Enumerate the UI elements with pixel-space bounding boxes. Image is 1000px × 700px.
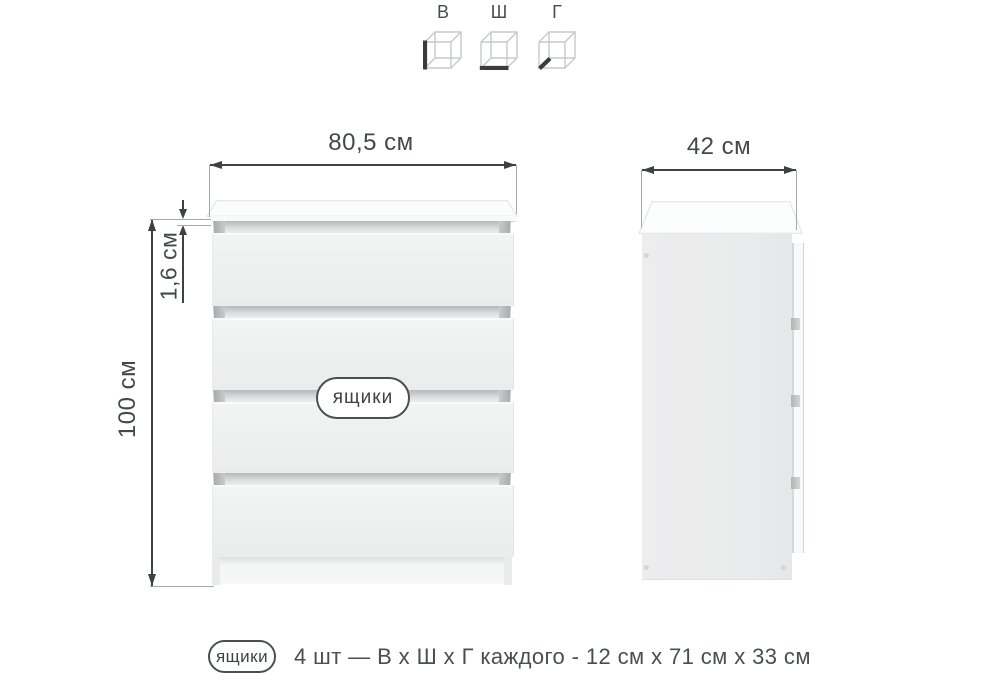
thickness-arrow-down [182, 200, 184, 209]
legend-width: Ш [477, 2, 521, 75]
width-extension-left [209, 165, 210, 217]
height-dimension-line [151, 219, 153, 586]
drawer-gap-2 [213, 306, 511, 318]
width-dimension-label: 80,5 см [328, 129, 413, 157]
side-panel [642, 234, 792, 580]
depth-extension-left [641, 170, 642, 228]
dowel-dot-bottom-right [781, 565, 786, 570]
depth-dimension-line [642, 169, 796, 171]
thickness-arrow-up [182, 235, 184, 303]
caption-text: 4 шт — В х Ш х Г каждого - 12 см х 71 см… [294, 641, 811, 673]
drawer-front-1 [212, 233, 514, 306]
height-extension-bottom [150, 586, 214, 587]
drawer-front-4 [212, 485, 514, 557]
cube-width-icon [479, 28, 519, 70]
legend-depth: Г [535, 2, 579, 75]
side-gap-notch-3 [791, 477, 800, 489]
height-extension-top [150, 219, 211, 220]
drawer-gap-4 [213, 473, 511, 485]
dowel-dot-top [644, 253, 649, 258]
width-dimension-line [210, 164, 516, 166]
cube-height-icon [423, 28, 463, 70]
depth-extension-right [796, 170, 797, 230]
thickness-extension-line [177, 225, 211, 226]
caption-badge: ящики [208, 640, 276, 673]
width-extension-right [516, 165, 517, 214]
drawers-badge: ящики [316, 377, 410, 419]
legend-height: В [421, 2, 465, 75]
caption-badge-label: ящики [216, 647, 268, 667]
legend-width-letter: Ш [477, 2, 521, 22]
dowel-dot-bottom-left [644, 565, 649, 570]
side-top-panel [638, 201, 803, 234]
side-gap-notch-1 [791, 318, 800, 330]
furniture-dimension-diagram: В Ш Г ящики [0, 0, 1000, 700]
drawers-badge-label: ящики [333, 387, 393, 409]
height-dimension-label: 100 см [114, 360, 142, 438]
cube-depth-icon [537, 28, 577, 70]
side-gap-notch-2 [791, 395, 800, 407]
front-top-panel [206, 200, 518, 217]
plinth-leg-left [212, 557, 220, 585]
plinth-leg-right [504, 557, 512, 585]
legend-height-letter: В [421, 2, 465, 22]
plinth-face [220, 557, 504, 584]
drawer-gap-1 [213, 221, 511, 233]
thickness-dimension-label: 1,6 см [156, 232, 183, 301]
depth-dimension-label: 42 см [687, 133, 751, 161]
legend-depth-letter: Г [535, 2, 579, 22]
